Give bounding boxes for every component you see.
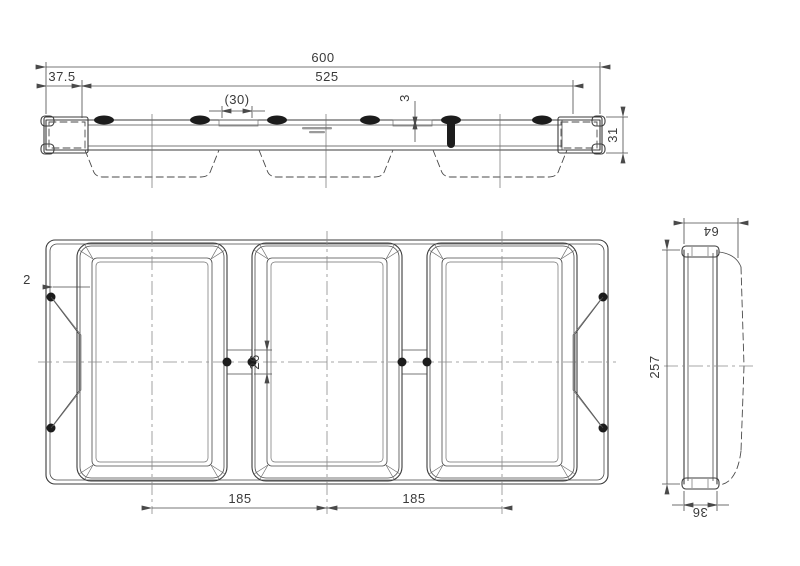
dim-inner-span-label: 525 [315,69,338,84]
compartment-3 [427,231,577,514]
dim-overall-height: 257 [647,250,680,484]
left-latch-bracket [47,293,82,433]
dim-bridge-height-label: 26 [247,354,262,369]
top-view-rail [46,120,600,150]
top-view: 600 525 37.5 (30) 3 [41,50,628,188]
dim-end-offset-label: 37.5 [48,69,75,84]
dim-gap-width: (30) [209,92,265,118]
compartment-2 [252,231,402,514]
right-latch-bracket [573,293,608,433]
drawing-sheet: 600 525 37.5 (30) 3 [0,0,800,566]
rear-profile [719,252,744,485]
dim-rim-depth-label: 36 [692,505,707,520]
front-view: 2 26 185 185 [23,231,616,514]
dim-pitch-right-label: 185 [402,491,425,506]
dim-rim-depth: 36 [672,491,729,520]
stamp-marking [302,127,332,133]
dim-wall-thickness-front-label: 2 [23,272,31,287]
dim-profile-height-label: 31 [605,127,620,142]
bottom-rim-cap [682,478,719,489]
left-end-cap [41,116,88,154]
dim-depth-label: 64 [703,224,718,239]
dim-profile-height: 31 [605,117,628,153]
dim-overall-height-label: 257 [647,355,662,378]
technical-drawing: 600 525 37.5 (30) 3 [0,0,800,566]
top-rim-cap [682,246,719,257]
dim-gap-width-label: (30) [224,92,249,107]
dim-inner-span: 525 [82,69,573,118]
fixing-pin [447,118,455,148]
compartment-1 [77,231,227,514]
right-end-cap [558,116,605,154]
dim-end-offset: 37.5 [47,69,81,86]
dim-pitch-left-label: 185 [228,491,251,506]
dim-wall-thickness-top-label: 3 [397,94,412,102]
side-view: 64 257 36 [647,218,757,520]
dim-wall-thickness-top: 3 [397,94,415,142]
dim-overall-width-label: 600 [311,50,334,65]
